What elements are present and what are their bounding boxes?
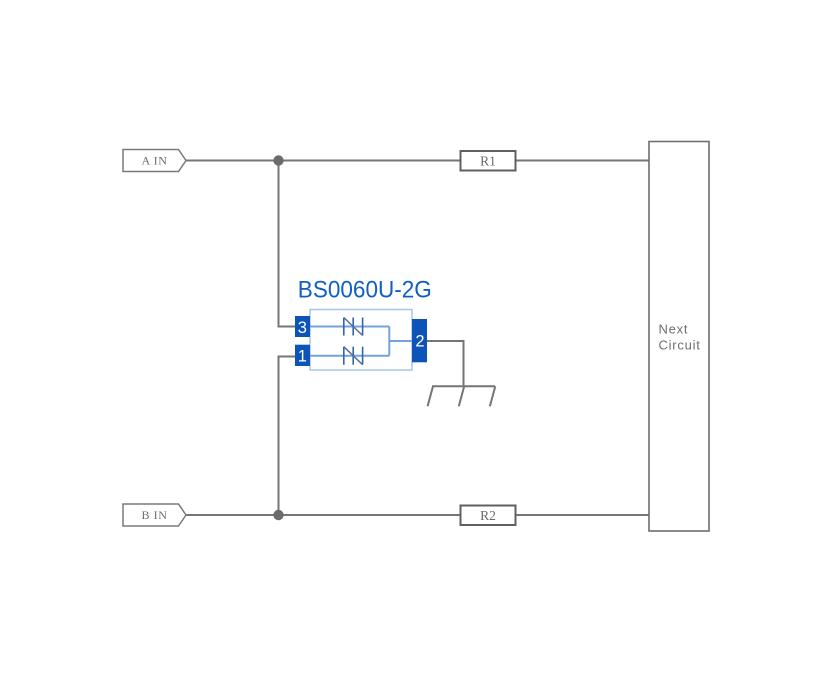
svg-text:BS0060U-2G: BS0060U-2G [298, 277, 432, 304]
svg-text:R1: R1 [480, 153, 496, 168]
svg-text:B IN: B IN [141, 508, 167, 522]
svg-text:2: 2 [415, 332, 424, 350]
svg-text:1: 1 [298, 347, 307, 365]
svg-text:A IN: A IN [141, 154, 167, 168]
svg-text:3: 3 [298, 319, 307, 337]
svg-text:Next: Next [659, 322, 689, 337]
svg-text:R2: R2 [480, 508, 496, 523]
svg-text:Circuit: Circuit [659, 338, 701, 353]
